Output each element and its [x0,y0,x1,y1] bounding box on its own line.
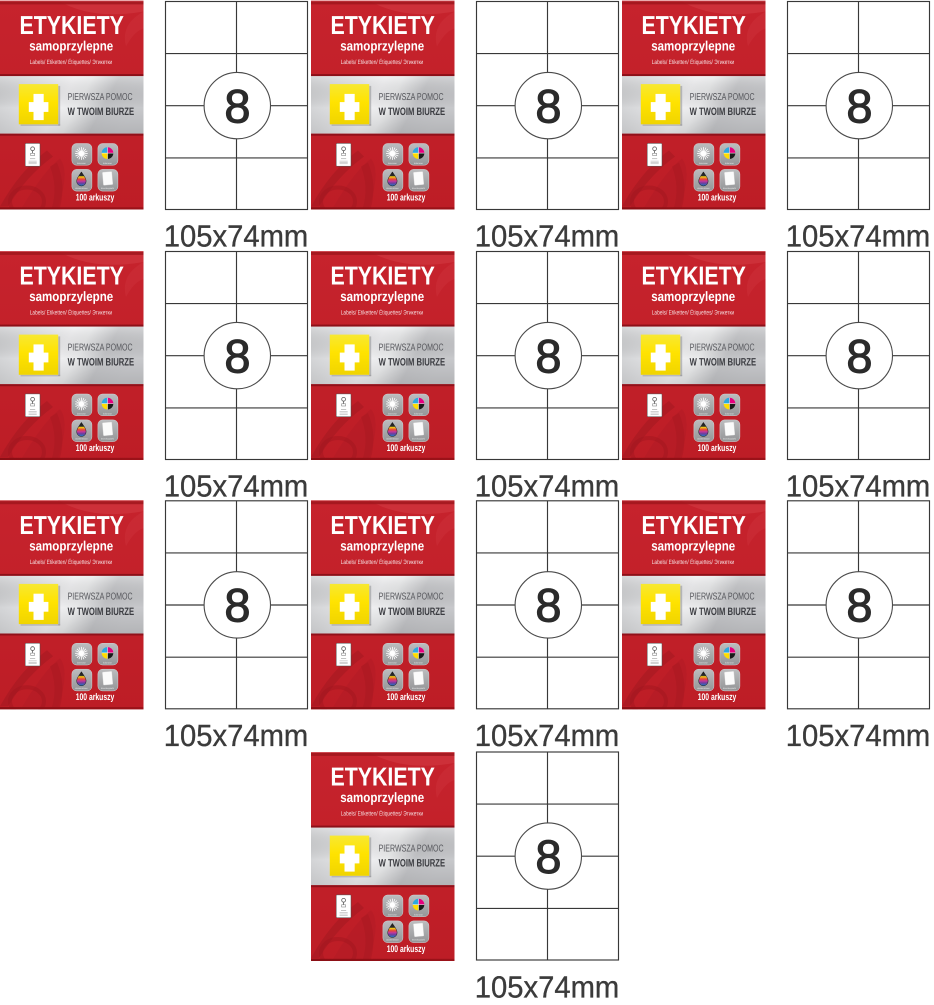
svg-text:105x74mm: 105x74mm [475,220,620,254]
svg-text:105x74mm: 105x74mm [164,220,309,254]
svg-text:105x74mm: 105x74mm [164,470,309,504]
svg-text:105x74mm: 105x74mm [786,719,931,753]
svg-text:105x74mm: 105x74mm [786,220,931,254]
svg-text:105x74mm: 105x74mm [475,719,620,753]
svg-text:105x74mm: 105x74mm [786,470,931,504]
svg-text:105x74mm: 105x74mm [475,470,620,504]
svg-text:105x74mm: 105x74mm [475,971,620,1001]
svg-text:105x74mm: 105x74mm [164,719,309,753]
